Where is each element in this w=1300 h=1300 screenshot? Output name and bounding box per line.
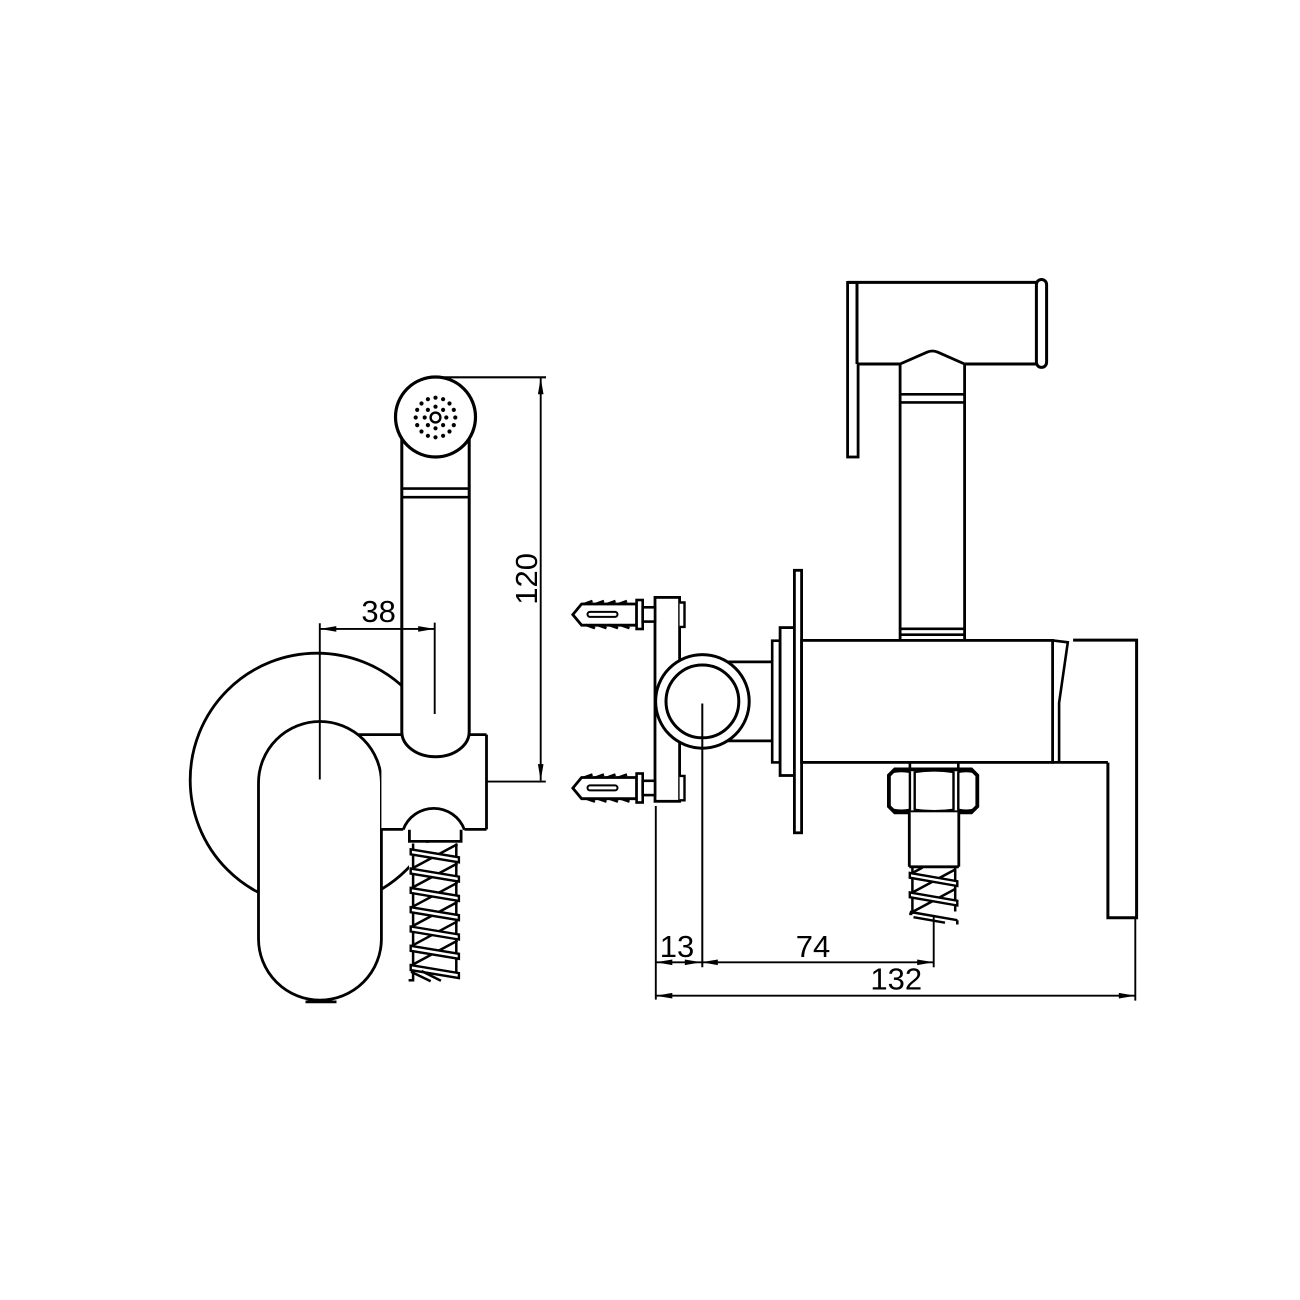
svg-text:74: 74 xyxy=(796,929,830,964)
svg-text:120: 120 xyxy=(509,553,544,605)
svg-text:132: 132 xyxy=(870,961,922,996)
svg-text:13: 13 xyxy=(660,929,694,964)
svg-text:38: 38 xyxy=(361,594,395,629)
